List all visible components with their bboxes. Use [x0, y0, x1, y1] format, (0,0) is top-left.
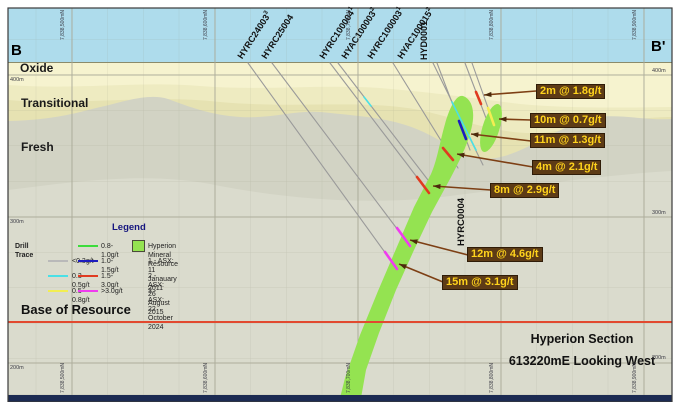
oxide-layer-label: Oxide: [20, 61, 53, 75]
legend-swatch-03-05: [48, 275, 68, 277]
drill-trace-label: HYRC0004: [456, 198, 467, 246]
northing-label: 7,838,800mN: [489, 363, 495, 393]
northing-label: 7,838,500mN: [60, 363, 66, 393]
assay-callout: 15m @ 3.1g/t: [442, 275, 518, 290]
fresh-layer-label: Fresh: [21, 140, 54, 154]
northing-label: 7,838,800mN: [489, 10, 495, 40]
section-end-label-left: B: [11, 42, 22, 59]
assay-callout: 11m @ 1.3g/t: [530, 133, 605, 148]
legend-swatch-gt30: [78, 290, 98, 292]
section-subtitle: 613220mE Looking West: [482, 354, 679, 368]
legend-item-label: >3.0g/t: [101, 287, 123, 296]
elevation-label: 300m: [10, 219, 24, 225]
drill-hole-label: HYD0001: [419, 21, 430, 60]
assay-callout: 10m @ 0.7g/t: [530, 113, 606, 128]
northing-label: 7,838,700mN: [346, 363, 352, 393]
section-title: Hyperion Section: [482, 332, 679, 346]
elevation-label: 400m: [10, 77, 24, 83]
legend-swatch-05-08: [48, 290, 68, 292]
legend-footnote: 3 - ASX: 22 October 2024: [148, 287, 173, 332]
section-plot: B B' Oxide Transitional Fresh Base of Re…: [0, 0, 679, 402]
section-end-label-right: B': [651, 38, 665, 55]
northing-label: 7,838,600mN: [203, 363, 209, 393]
legend-title: Legend: [112, 222, 146, 233]
legend-resource-swatch: [132, 240, 145, 252]
assay-callout: 4m @ 2.1g/t: [532, 160, 601, 175]
legend-swatch-lt03: [48, 260, 68, 262]
northing-label: 7,838,900mN: [632, 10, 638, 40]
northing-label: 7,838,500mN: [60, 10, 66, 40]
elevation-label: 200m: [652, 355, 666, 361]
drill-hole-name: HYD0001: [419, 21, 429, 60]
northing-label: 7,838,700mN: [346, 10, 352, 40]
transitional-layer-label: Transitional: [21, 96, 88, 110]
elevation-label: 400m: [652, 68, 666, 74]
legend-swatch-15-30: [78, 275, 98, 277]
assay-callout: 8m @ 2.9g/t: [490, 183, 559, 198]
assay-callout: 2m @ 1.8g/t: [536, 84, 605, 99]
legend-swatch-10-15: [78, 260, 98, 262]
northing-label: 7,838,600mN: [203, 10, 209, 40]
arrow-10m: [499, 119, 531, 120]
bottom-strip: [8, 395, 672, 402]
legend-swatch-08-10: [78, 245, 98, 247]
elevation-label: 200m: [10, 365, 24, 371]
elevation-label: 300m: [652, 210, 666, 216]
northing-label: 7,838,900mN: [632, 363, 638, 393]
assay-callout: 12m @ 4.6g/t: [467, 247, 543, 262]
legend-drill-trace-header: Drill Trace: [15, 242, 33, 260]
